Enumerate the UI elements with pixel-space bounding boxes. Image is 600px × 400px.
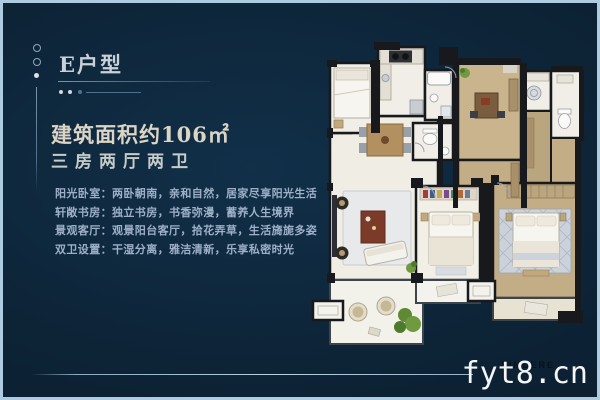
deco-ring-icon: [33, 58, 41, 66]
floor-plan: [311, 23, 589, 353]
building-area-text: 建筑面积约106㎡: [51, 119, 230, 149]
deco-dot-icon: [78, 90, 82, 94]
deco-dot-icon: [59, 90, 63, 94]
deco-short-line: [86, 92, 141, 93]
property-ad-canvas: E户型 建筑面积约106㎡ 三房两厅两卫 阳光卧室：两卧朝南，亲和自然，居家尽享…: [0, 0, 600, 400]
footer-divider-line: [31, 374, 473, 375]
feature-study: 轩敞书房：独立书房，书香弥漫，蓄养人生境界: [55, 204, 317, 223]
deco-ring-icon: [33, 44, 41, 52]
feature-living-room: 景观客厅：观景阳台客厅，拾花弄草，生活旖旎多姿: [55, 222, 317, 241]
dining-table: [359, 124, 411, 156]
site-watermark: fyt8.cn: [462, 356, 588, 391]
living-room-furniture: [332, 191, 417, 273]
deco-dot-icon: [34, 73, 39, 78]
corridor-sideboard: [511, 163, 519, 197]
deco-vertical-line: [36, 87, 37, 190]
feature-list: 阳光卧室：两卧朝南，亲和自然，居家尽享阳光生活 轩敞书房：独立书房，书香弥漫，蓄…: [55, 185, 317, 259]
deco-dot-icon: [68, 90, 72, 94]
room-layout-text: 三房两厅两卫: [51, 147, 195, 172]
title-underline: [58, 81, 210, 82]
feature-two-baths: 双卫设置：干湿分离，雅洁清新，乐享私密时光: [55, 241, 317, 260]
feature-sunny-bedroom: 阳光卧室：两卧朝南，亲和自然，居家尽享阳光生活: [55, 185, 317, 204]
unit-type-title: E户型: [59, 49, 123, 79]
